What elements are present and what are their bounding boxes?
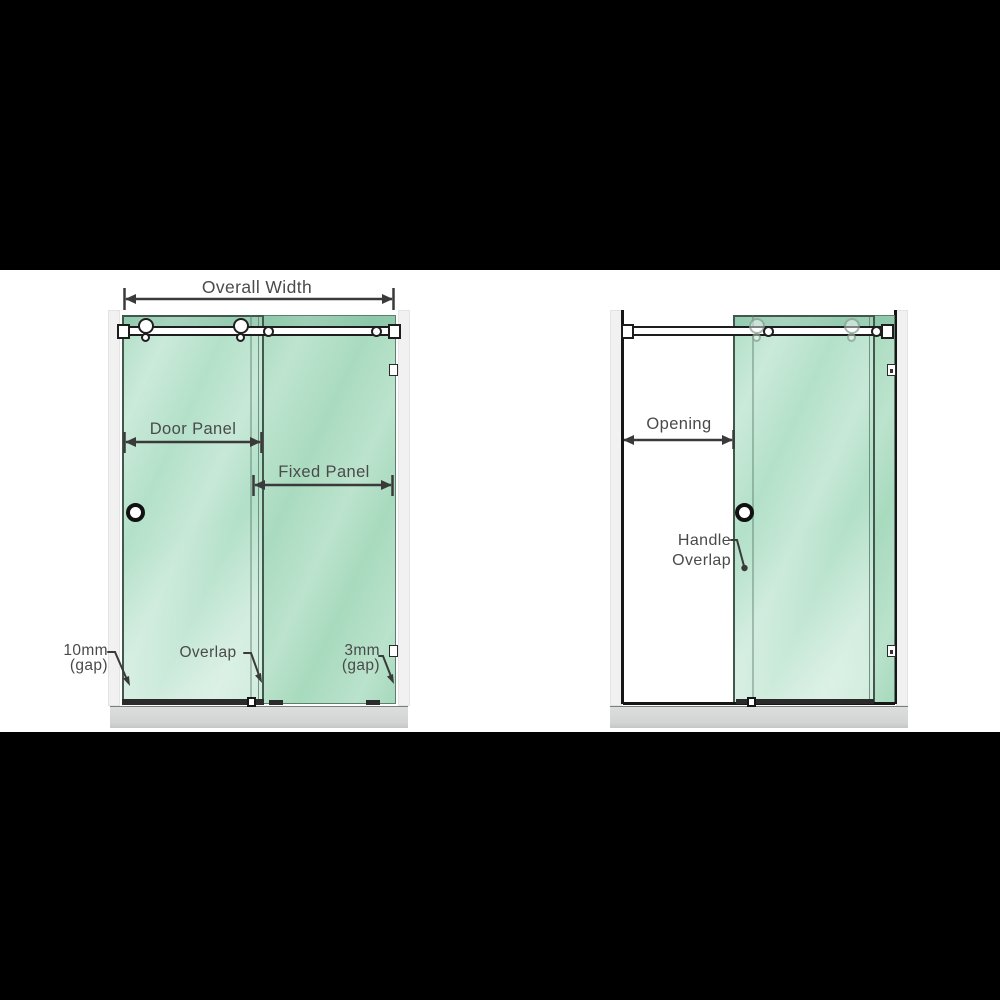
top-track [120,326,398,336]
fixed-panel-arrow [247,473,399,499]
gap-right-leader [374,651,400,691]
track-end-bracket-icon [881,324,894,339]
panel-clamp-icon [871,326,882,337]
wall-bracket-icon [887,645,896,657]
floor-guide-block [747,697,756,707]
bracket-screw-icon [890,650,893,654]
wall-edge-line [621,310,624,704]
floor-guide-block [247,697,256,707]
panel-clamp-icon [371,326,382,337]
roller-pin-ghost-icon [847,333,856,342]
left-diagram-wall-right [398,310,410,706]
gap-right-unit: (gap) [318,658,380,673]
handle-overlap-line1: Handle [655,531,731,551]
bracket-screw-icon [890,369,893,373]
overlap-leader [242,648,268,690]
wall-bracket-icon [887,364,896,376]
overall-width-arrow [118,286,400,312]
overlap-label: Overlap [168,645,248,660]
door-handle-icon [126,503,145,522]
panel-clamp-icon [763,326,774,337]
handle-overlap-leader [729,535,753,577]
door-panel-glass-open [733,315,875,704]
gap-left-leader [106,646,136,692]
opening-arrow [618,428,740,454]
left-diagram-floor-base [110,706,408,728]
track-end-bracket-icon [117,324,130,339]
fixed-panel-foot [366,700,380,705]
wall-bracket-icon [389,364,398,376]
roller-icon [138,318,154,334]
track-end-bracket-icon [388,324,401,339]
handle-overlap-label: Handle Overlap [655,531,731,571]
fixed-panel-foot [269,700,283,705]
gap-left-value: 10mm [40,643,108,658]
right-diagram-floor-base [610,706,908,728]
fixed-panel-edge-seam [250,315,252,703]
door-bottom-seal [122,699,264,705]
panel-clamp-icon [263,326,274,337]
door-bottom-seal [736,699,874,704]
shower-door-diagram: Overall Width Door Panel Fixed Panel 10m… [0,0,1000,1000]
door-handle-icon [735,503,754,522]
gap-right-value: 3mm [318,643,380,658]
gap-right-label: 3mm (gap) [318,643,380,673]
roller-icon [233,318,249,334]
gap-left-label: 10mm (gap) [40,643,108,673]
roller-pin-ghost-icon [752,333,761,342]
right-diagram-wall-right [896,310,908,706]
handle-overlap-line2: Overlap [655,551,731,571]
track-end-bracket-icon [621,324,634,339]
door-panel-arrow [118,430,268,456]
roller-ghost-icon [844,318,860,334]
roller-pin-icon [236,333,245,342]
gap-left-unit: (gap) [40,658,108,673]
roller-pin-icon [141,333,150,342]
